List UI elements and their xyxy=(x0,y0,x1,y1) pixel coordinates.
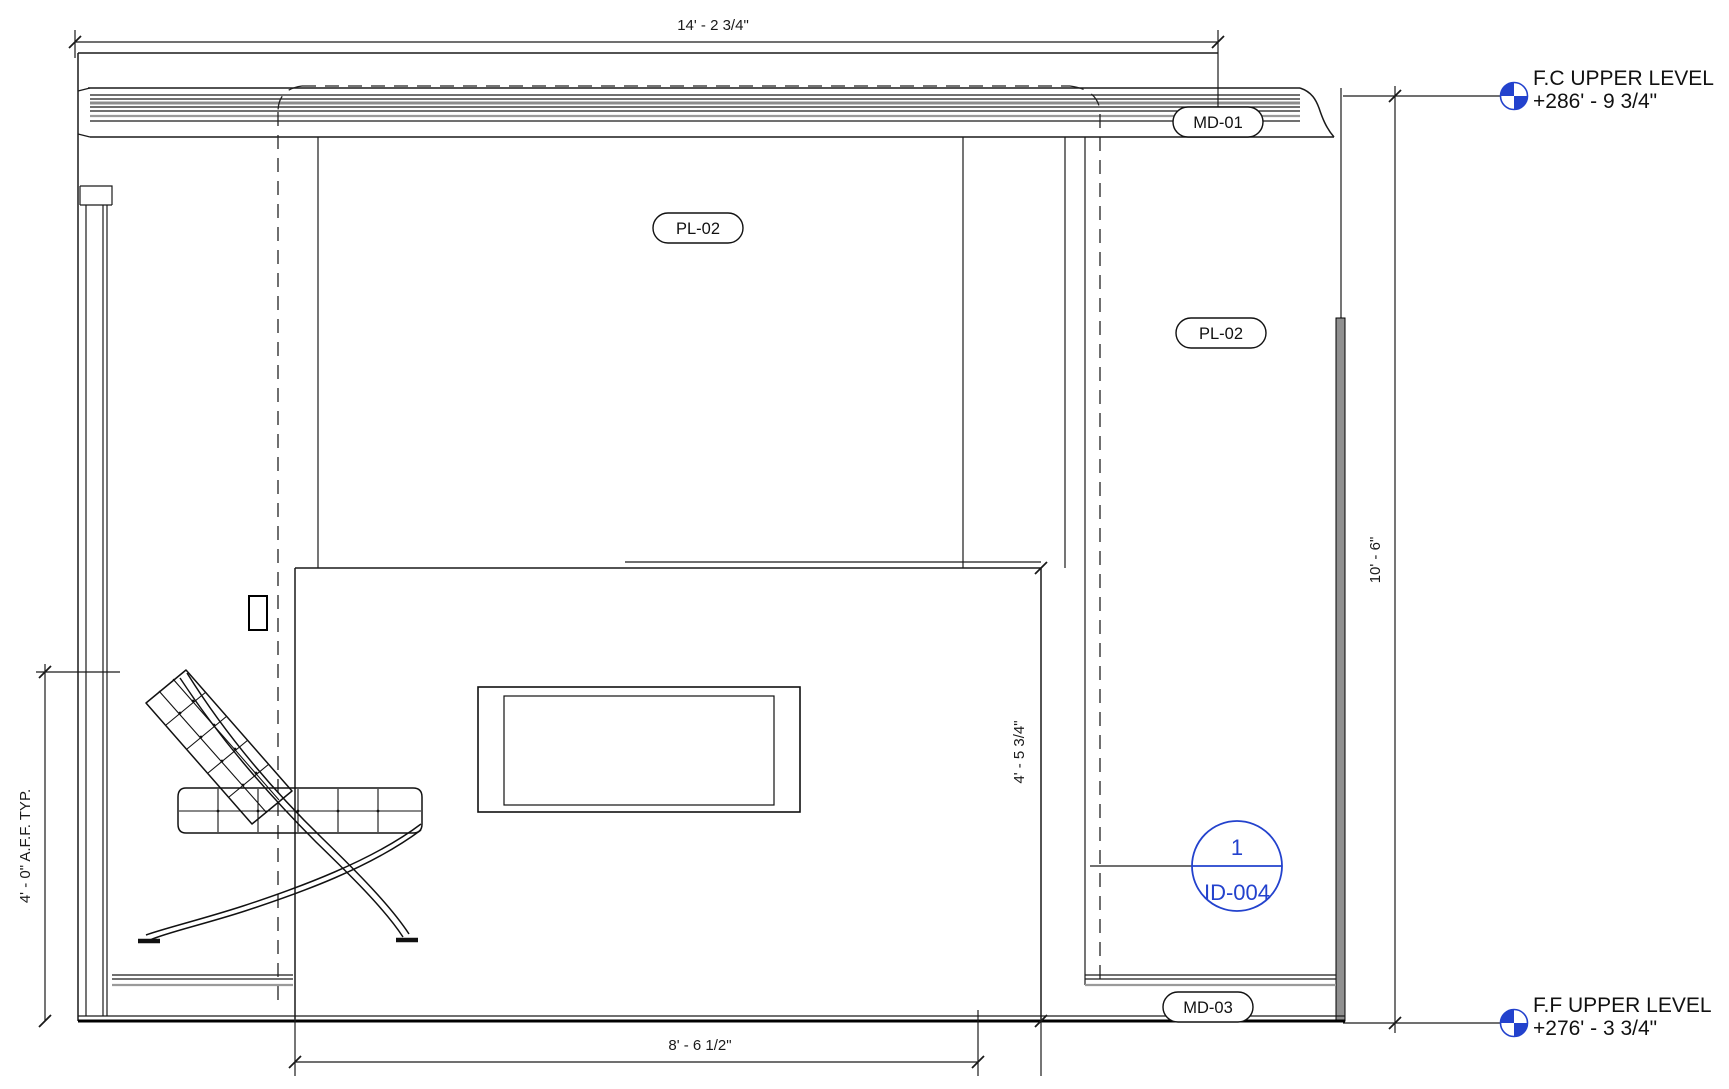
barcelona-chair xyxy=(138,670,422,941)
level-head-icon xyxy=(1501,83,1528,110)
callout-detail-number: 1 xyxy=(1231,835,1243,860)
elevation-drawing-canvas: 14' - 2 3/4" 8' - 6 1/2" 4' - 0" A.F.F. … xyxy=(0,0,1729,1089)
tag-md-01[interactable]: MD-01 xyxy=(1173,107,1263,137)
dim-text-left-aff: 4' - 0" A.F.F. TYP. xyxy=(17,789,34,903)
level-elevation-ff: +276' - 3 3/4" xyxy=(1533,1017,1657,1040)
tag-label: PL-02 xyxy=(676,220,720,238)
fireplace-surround[interactable] xyxy=(295,562,1041,1019)
dim-text-bottom: 8' - 6 1/2" xyxy=(668,1037,731,1054)
chair-back-tuft-line xyxy=(166,692,206,725)
chair-back-cushion xyxy=(146,670,292,824)
level-marker-ff[interactable]: F.F UPPER LEVEL +276' - 3 3/4" xyxy=(1343,994,1712,1040)
level-name-fc: F.C UPPER LEVEL xyxy=(1533,67,1714,90)
detail-callout[interactable]: 1 ID-004 xyxy=(1090,821,1282,911)
level-elevation-fc: +286' - 9 3/4" xyxy=(1533,90,1657,113)
interior-elevation-view: 14' - 2 3/4" 8' - 6 1/2" 4' - 0" A.F.F. … xyxy=(0,0,1729,1089)
tag-label: MD-01 xyxy=(1193,114,1243,132)
wall-switch xyxy=(249,596,267,630)
callout-sheet-number: ID-004 xyxy=(1204,880,1270,905)
crown-right-profile xyxy=(1300,88,1334,137)
crown-left-return xyxy=(78,88,90,137)
tag-pl-02-right[interactable]: PL-02 xyxy=(1176,318,1266,348)
level-name-ff: F.F UPPER LEVEL xyxy=(1533,994,1712,1017)
dimension-left-aff[interactable]: 4' - 0" A.F.F. TYP. xyxy=(17,664,120,1027)
right-wall-reveal-gray-bar xyxy=(1336,318,1345,1021)
firebox-opening xyxy=(504,696,774,805)
tag-label: MD-03 xyxy=(1183,999,1233,1017)
dim-text-top: 14' - 2 3/4" xyxy=(677,17,749,34)
chair-back-tuft-line xyxy=(187,716,227,749)
chair-seat-leg-bar xyxy=(150,830,421,940)
door-frame-head xyxy=(80,186,112,205)
dim-text-right-height: 10' - 6" xyxy=(1367,537,1384,584)
dim-text-fireplace-height: 4' - 5 3/4" xyxy=(1011,720,1028,783)
chair-back-buttons xyxy=(179,700,258,787)
door-frame xyxy=(80,186,112,1016)
wall-structure xyxy=(78,53,1345,1021)
crown-molding[interactable] xyxy=(78,88,1334,137)
chair-back-tuft-line xyxy=(159,691,266,812)
level-marker-fc[interactable]: F.C UPPER LEVEL +286' - 9 3/4" xyxy=(1343,67,1714,113)
dimension-right-height[interactable]: 10' - 6" xyxy=(1367,86,1401,1033)
chair-back-tuft-line xyxy=(173,679,279,800)
tag-pl-02-center[interactable]: PL-02 xyxy=(653,213,743,243)
tag-label: PL-02 xyxy=(1199,325,1243,343)
chair-seat-leg-bar-inner xyxy=(146,824,421,935)
level-head-icon xyxy=(1501,1010,1528,1037)
dashed-corner-tr xyxy=(1070,86,1100,114)
dimension-top-width[interactable]: 14' - 2 3/4" xyxy=(69,17,1224,107)
tag-md-03[interactable]: MD-03 xyxy=(1163,992,1253,1022)
